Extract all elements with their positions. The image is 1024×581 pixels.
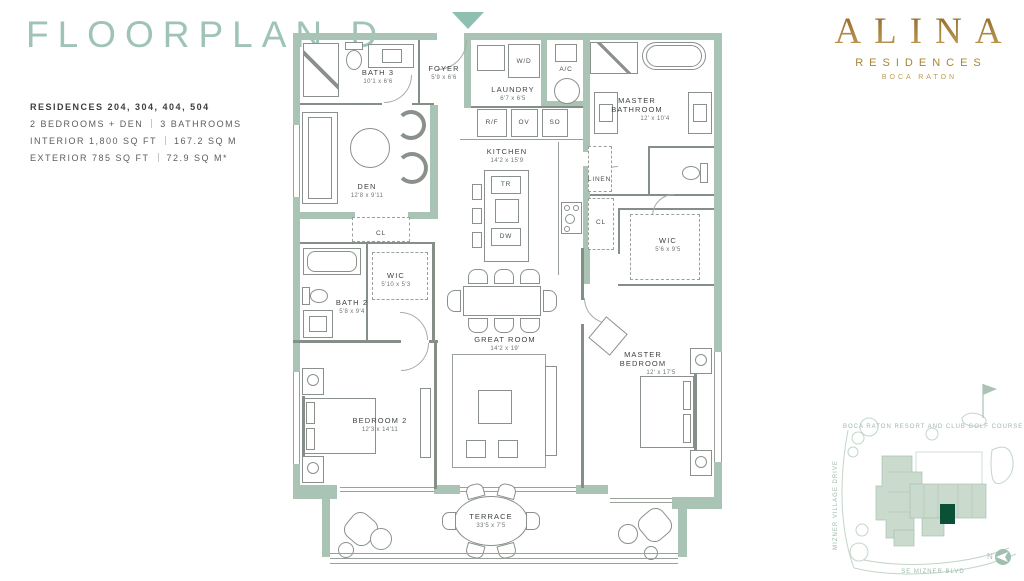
burner (564, 226, 570, 232)
door-arc (400, 312, 428, 340)
entry-arrow-icon (452, 12, 484, 29)
burner (573, 205, 579, 211)
label-wd: W/D (516, 58, 531, 65)
room-label-den: DEN12'8 x 9'11 (351, 182, 384, 201)
label-tr: TR (501, 181, 511, 188)
room-label-wic-master: WIC5'6 x 9'5 (655, 236, 681, 255)
highlighted-unit (940, 504, 955, 524)
wall (590, 194, 650, 196)
label-cl-den: CL (376, 230, 386, 237)
tree (848, 447, 858, 457)
toilet (345, 42, 363, 50)
headboard (302, 396, 305, 456)
dining-chair (520, 318, 540, 333)
lamp (307, 462, 319, 474)
counter-line (460, 139, 583, 140)
terrace-railing (330, 558, 678, 559)
island-sink (495, 199, 519, 223)
map-street-left-label: MIZNER VILLAGE DRIVE (833, 454, 839, 556)
dining-chair (543, 290, 557, 312)
dining-chair (520, 269, 540, 284)
toilet (310, 289, 328, 303)
tree (852, 432, 864, 444)
burner (564, 205, 570, 211)
bathtub-inner (646, 45, 702, 67)
room-label-laundry: LAUNDRY6'7 x 6'5 (491, 85, 534, 104)
wall (464, 33, 722, 40)
slider-door (340, 487, 434, 492)
room-label-wic2: WIC5'10 x 5'3 (381, 271, 410, 290)
shower (303, 43, 339, 97)
toilet (302, 287, 310, 305)
coffee-table (478, 390, 512, 424)
dining-table (463, 286, 541, 316)
room-label-bedroom2: BEDROOM 212'3 x 14'11 (353, 416, 408, 435)
side-table (338, 542, 354, 558)
label-ov: OV (519, 119, 530, 126)
dining-chair (447, 290, 461, 312)
room-label-kitchen: KITCHEN14'2 x 15'9 (487, 147, 528, 166)
laundry-sink (477, 45, 505, 71)
pillow (306, 402, 315, 424)
dining-chair (494, 318, 514, 333)
side-table (618, 524, 638, 544)
label-dw: DW (500, 233, 512, 240)
media-console (545, 366, 557, 456)
wall (581, 324, 584, 488)
wall (648, 194, 714, 196)
tree (856, 524, 868, 536)
label-so: SO (550, 119, 561, 126)
side-table (370, 528, 392, 550)
island-stool (472, 184, 482, 200)
building-footprint (876, 452, 986, 546)
wall (300, 103, 382, 105)
sink (382, 49, 402, 63)
wall (434, 485, 460, 494)
wall (648, 146, 714, 148)
dining-chair (494, 269, 514, 284)
wall (581, 248, 584, 300)
sink (693, 104, 707, 122)
island-stool (472, 232, 482, 248)
door-arc (401, 343, 429, 371)
linen-closet (588, 146, 612, 192)
room-label-master-bedroom: MASTER BEDROOM12' x 17'5 (643, 350, 679, 378)
map-north-label: N (987, 552, 994, 561)
lamp (307, 374, 319, 386)
toilet (700, 163, 708, 183)
golf-flag-icon (983, 384, 997, 418)
wall (295, 33, 437, 40)
pillow (683, 414, 691, 443)
wall (293, 340, 401, 343)
sink (309, 316, 327, 332)
island-stool (472, 208, 482, 224)
door-arc (652, 194, 674, 216)
terrace-chair (526, 512, 540, 530)
wall (432, 242, 435, 343)
round-table (350, 128, 390, 168)
wall (418, 40, 420, 103)
room-label-foyer: FOYER5'9 x 6'6 (428, 64, 459, 83)
north-arrow-icon (995, 549, 1011, 565)
window (714, 352, 722, 462)
accent-chair (466, 440, 486, 458)
dining-chair (468, 269, 488, 284)
wall (672, 497, 722, 509)
room-label-bath3: BATH 310'1 x 6'6 (362, 68, 394, 87)
wall (293, 485, 337, 499)
label-cl-hall: CL (596, 219, 606, 226)
label-linen: LINEN (588, 176, 611, 183)
room-label-master-bath: MASTER BATHROOM12' x 10'4 (637, 96, 673, 124)
wall (471, 106, 583, 108)
pillow (683, 381, 691, 410)
wall (618, 284, 714, 286)
map-street-bottom-label: SE MIZNER BLVD (878, 569, 988, 575)
slider-door (610, 498, 672, 503)
wall (648, 146, 650, 196)
room-label-great-room: GREAT ROOM14'2 x 19' (474, 335, 536, 354)
dresser (420, 388, 431, 458)
wall (678, 509, 687, 557)
wall (583, 40, 590, 152)
label-rf: R/F (486, 119, 499, 126)
tree (850, 543, 868, 561)
lamp (695, 354, 707, 366)
accent-chair (498, 440, 518, 458)
map-golf-course-label: BOCA RATON RESORT AND CLUB GOLF COURSE (843, 424, 1013, 430)
wall (541, 40, 547, 106)
lounge-chair (634, 504, 676, 546)
water-heater (554, 78, 580, 104)
armchair (396, 152, 428, 184)
armchair (396, 110, 426, 140)
site-map (824, 372, 1024, 580)
toilet (346, 50, 362, 70)
wall (434, 343, 437, 489)
terrace-railing (330, 563, 678, 564)
terrace-chair (442, 512, 456, 530)
ac-unit (555, 44, 577, 62)
wall (366, 244, 368, 340)
window (293, 372, 300, 464)
wall (293, 212, 355, 219)
pillow (306, 428, 315, 450)
room-label-bath2: BATH 25'8 x 9'4 (336, 298, 368, 317)
dining-chair (468, 318, 488, 333)
burner (565, 214, 575, 224)
counter-line (558, 142, 559, 275)
headboard (694, 374, 697, 450)
wall (430, 105, 438, 219)
wall (322, 497, 330, 557)
label-ac: A/C (559, 66, 572, 73)
toilet (682, 166, 700, 180)
room-label-terrace: TERRACE33'5 x 7'5 (469, 512, 513, 531)
golf-boundary (991, 447, 1013, 483)
bathtub-inner (307, 251, 357, 272)
lamp (695, 456, 707, 468)
shower (590, 42, 638, 74)
wall (618, 208, 620, 254)
window (293, 125, 300, 197)
wall (412, 103, 434, 105)
sofa-cushions (308, 117, 332, 199)
terrace-railing (330, 553, 678, 554)
